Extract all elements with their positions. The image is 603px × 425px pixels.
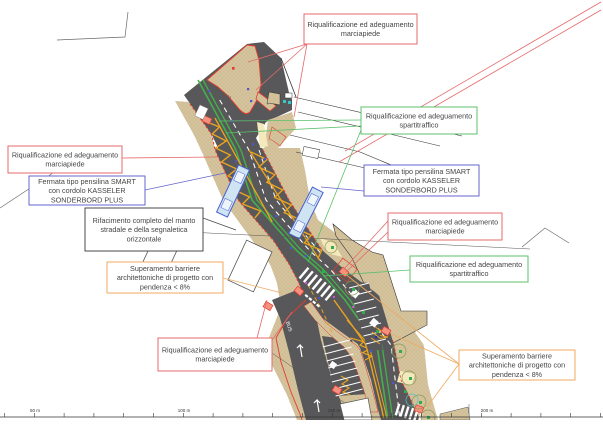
svg-text:con cordolo KASSELER: con cordolo KASSELER — [48, 186, 125, 195]
svg-text:marciapiede: marciapiede — [425, 227, 464, 236]
svg-text:stradale e della segnaletica: stradale e della segnaletica — [100, 225, 187, 234]
svg-text:orizzontale: orizzontale — [127, 234, 162, 243]
svg-text:150 m: 150 m — [328, 408, 341, 413]
svg-text:pendenza < 8%: pendenza < 8% — [492, 370, 543, 379]
svg-text:architettoniche di progetto co: architettoniche di progetto con — [117, 273, 213, 282]
svg-text:Riqualificazione ed adeguament: Riqualificazione ed adeguamento — [392, 218, 498, 227]
svg-text:SONDERBORD PLUS: SONDERBORD PLUS — [51, 195, 123, 204]
svg-text:Riqualificazione ed adeguament: Riqualificazione ed adeguamento — [307, 20, 413, 29]
svg-text:con cordolo KASSELER: con cordolo KASSELER — [383, 176, 460, 185]
svg-text:Fermata tipo pensilina SMART: Fermata tipo pensilina SMART — [38, 177, 136, 186]
svg-text:spartitraffico: spartitraffico — [449, 269, 488, 278]
svg-text:pendenza < 8%: pendenza < 8% — [140, 282, 191, 291]
svg-text:marciapiede: marciapiede — [195, 355, 234, 364]
svg-text:Fermata tipo pensilina SMART: Fermata tipo pensilina SMART — [373, 167, 471, 176]
svg-text:Riqualificazione ed adeguament: Riqualificazione ed adeguamento — [12, 151, 118, 160]
svg-text:SONDERBORD PLUS: SONDERBORD PLUS — [385, 185, 457, 194]
svg-text:200 m: 200 m — [481, 408, 494, 413]
svg-text:architettoniche di progetto co: architettoniche di progetto con — [469, 361, 565, 370]
svg-text:Rifacimento completo del manto: Rifacimento completo del manto — [93, 216, 196, 225]
svg-text:marciapiede: marciapiede — [341, 29, 380, 38]
svg-text:marciapiede: marciapiede — [45, 160, 84, 169]
svg-text:Riqualificazione ed adeguament: Riqualificazione ed adeguamento — [416, 260, 522, 269]
svg-text:50 m: 50 m — [30, 408, 40, 413]
svg-text:Superamento barriere: Superamento barriere — [130, 264, 200, 273]
svg-text:Riqualificazione ed adeguament: Riqualificazione ed adeguamento — [366, 112, 472, 121]
svg-text:Riqualificazione ed adeguament: Riqualificazione ed adeguamento — [162, 346, 268, 355]
svg-text:spartitraffico: spartitraffico — [399, 121, 438, 130]
svg-text:100 m: 100 m — [178, 408, 191, 413]
svg-text:Superamento barriere: Superamento barriere — [482, 351, 552, 360]
